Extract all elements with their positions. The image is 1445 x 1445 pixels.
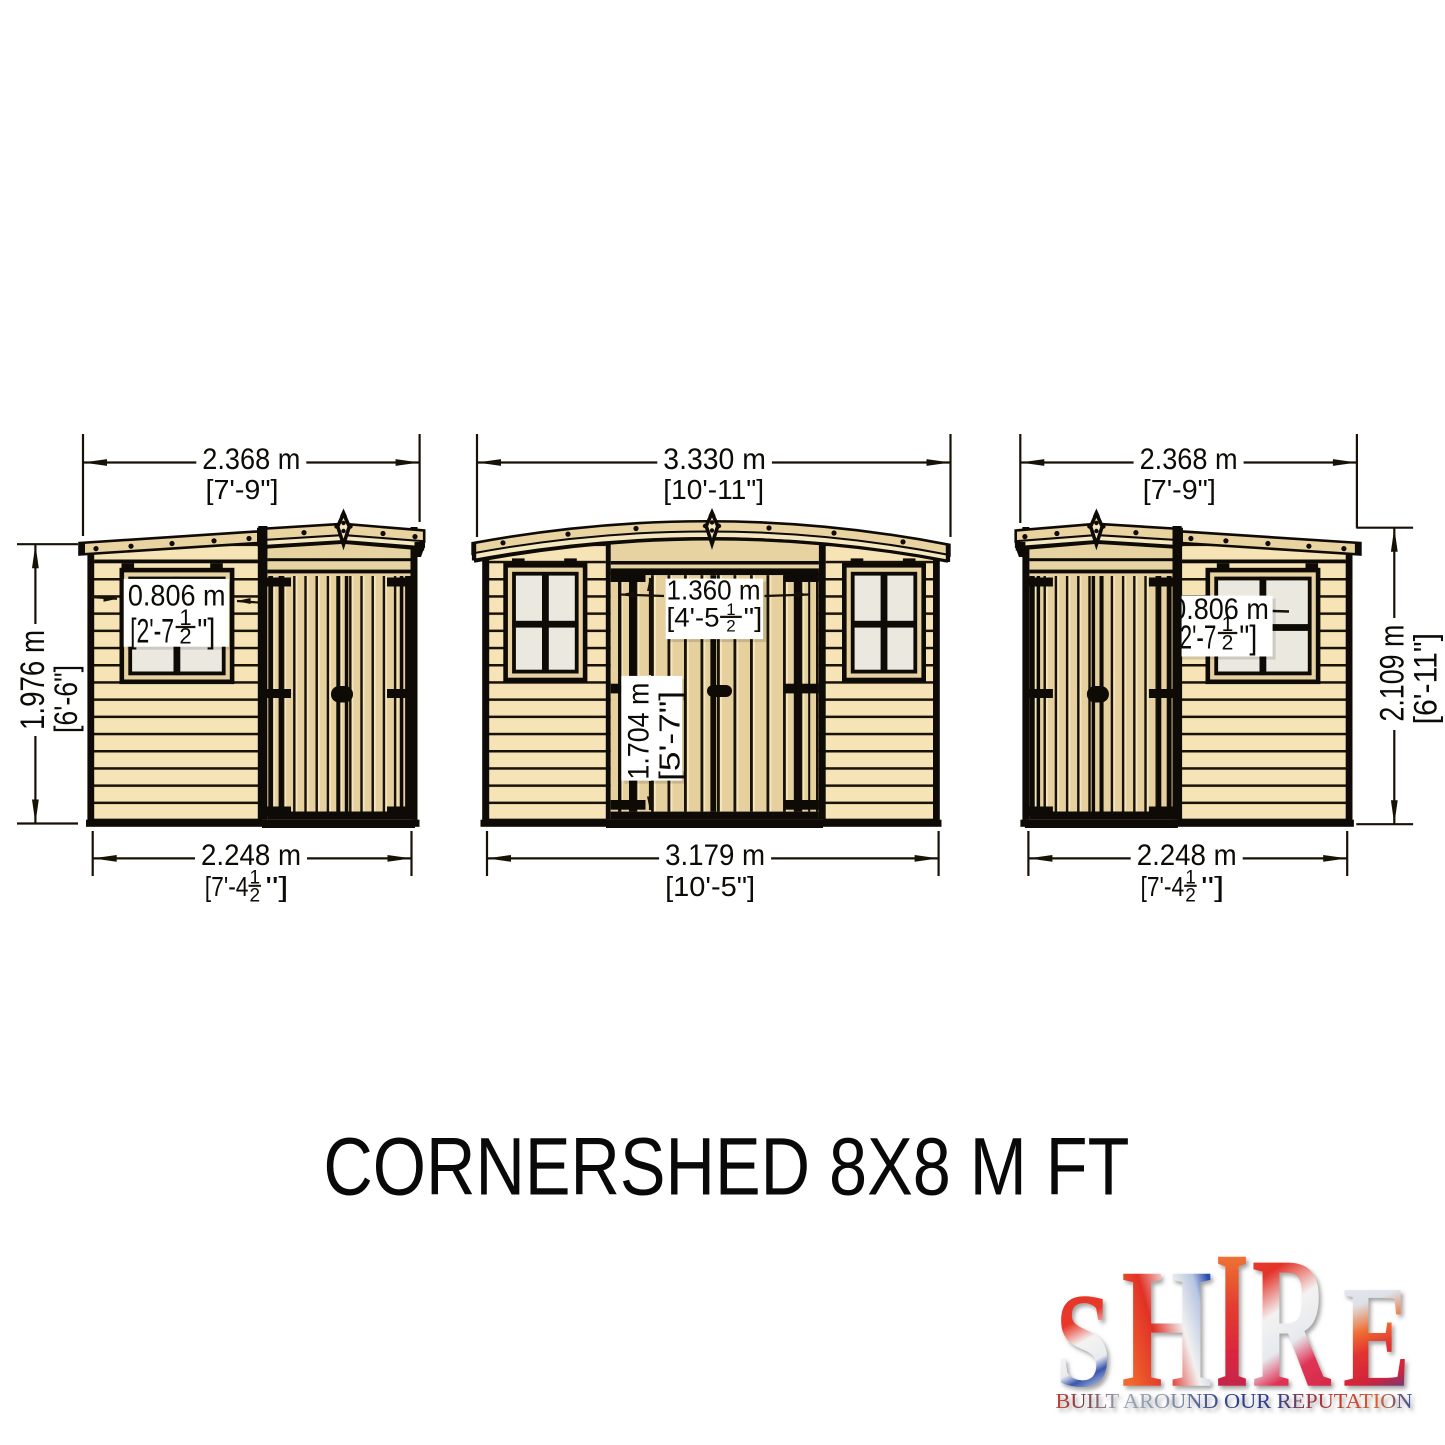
svg-text:0.806 m: 0.806 m xyxy=(128,579,226,612)
svg-text:[6'-6"]: [6'-6"] xyxy=(48,665,84,733)
svg-text:1.360 m: 1.360 m xyxy=(667,575,761,606)
svg-text:2.368 m: 2.368 m xyxy=(1140,443,1238,476)
svg-text:[7'-9"]: [7'-9"] xyxy=(206,474,279,505)
svg-text:"]: "] xyxy=(1239,619,1257,656)
svg-text:2: 2 xyxy=(726,616,735,635)
svg-text:"]: "] xyxy=(744,603,763,633)
svg-text:[7'-4: [7'-4 xyxy=(205,871,249,902)
svg-text:BUILT AROUND OUR REPUTATION: BUILT AROUND OUR REPUTATION xyxy=(1056,1389,1413,1413)
svg-text:3.330 m: 3.330 m xyxy=(663,443,766,476)
svg-text:[10'-11"]: [10'-11"] xyxy=(663,474,764,505)
svg-text:CORNERSHED 8X8 M FT: CORNERSHED 8X8 M FT xyxy=(323,1121,1129,1212)
svg-text:[5'-7"]: [5'-7"] xyxy=(655,691,687,781)
svg-text:"]: "] xyxy=(197,613,215,651)
svg-text:"]: "] xyxy=(266,871,289,902)
svg-text:[7'-9"]: [7'-9"] xyxy=(1143,474,1216,505)
svg-text:[10'-5"]: [10'-5"] xyxy=(665,871,755,902)
svg-text:[7'-4: [7'-4 xyxy=(1141,871,1185,902)
svg-text:1.704 m: 1.704 m xyxy=(622,683,655,780)
svg-text:2.368 m: 2.368 m xyxy=(202,443,300,476)
svg-text:2: 2 xyxy=(250,886,261,907)
svg-text:[4'-5: [4'-5 xyxy=(667,603,720,633)
svg-text:2: 2 xyxy=(1185,886,1196,907)
svg-text:2.109 m: 2.109 m xyxy=(1373,625,1411,722)
svg-text:3.179 m: 3.179 m xyxy=(665,839,765,872)
svg-text:2: 2 xyxy=(1222,632,1234,655)
svg-text:[2'-7: [2'-7 xyxy=(130,613,174,651)
svg-text:2: 2 xyxy=(179,624,191,649)
svg-text:"]: "] xyxy=(1201,871,1224,902)
svg-text:[6'-11"]: [6'-11"] xyxy=(1408,633,1444,724)
svg-text:1.976 m: 1.976 m xyxy=(14,630,52,730)
